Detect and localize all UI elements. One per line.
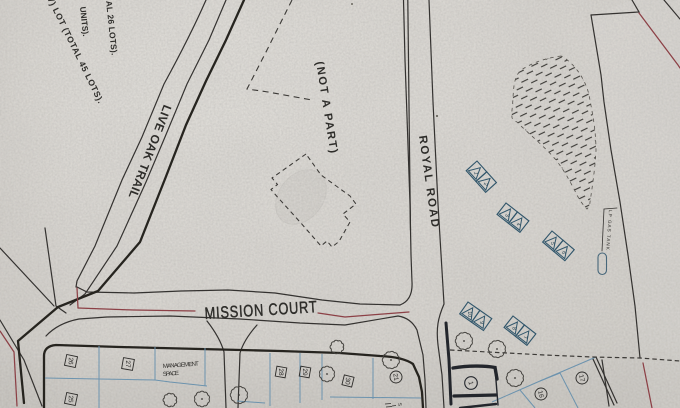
svg-text:29: 29 [301,368,308,376]
svg-text:26: 26 [67,357,74,365]
svg-text:28: 28 [277,368,284,376]
svg-text:7: 7 [522,336,528,339]
svg-text:SPACE: SPACE [163,371,179,378]
svg-text:25: 25 [67,395,74,403]
svg-text:27: 27 [124,360,131,368]
svg-text:10: 10 [466,311,472,317]
svg-text:9: 9 [478,321,484,324]
svg-text:3: 3 [503,214,509,217]
svg-text:4: 4 [515,223,521,226]
svg-text:30: 30 [344,377,352,385]
svg-text:8: 8 [510,327,516,330]
